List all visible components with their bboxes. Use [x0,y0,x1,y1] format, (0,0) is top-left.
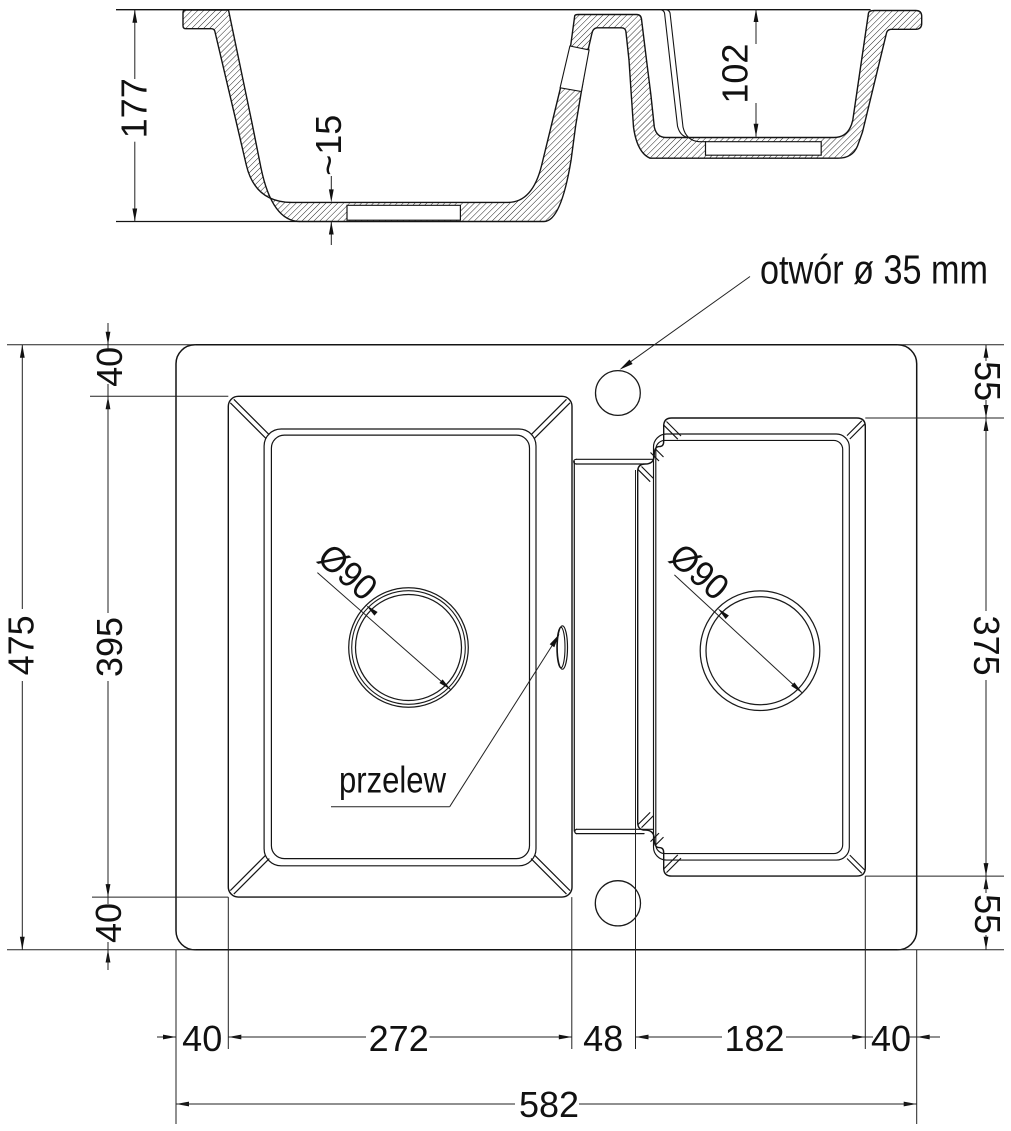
svg-text:272: 272 [369,1018,429,1059]
svg-text:395: 395 [89,617,130,677]
svg-text:582: 582 [519,1084,579,1125]
svg-text:375: 375 [966,616,1007,676]
svg-text:182: 182 [724,1018,784,1059]
svg-text:55: 55 [967,361,1008,401]
svg-text:40: 40 [89,347,130,387]
svg-text:przelew: przelew [339,760,446,801]
svg-text:40: 40 [871,1018,911,1059]
svg-text:Ø90: Ø90 [310,535,385,608]
svg-text:otwór ø 35 mm: otwór ø 35 mm [760,246,988,292]
svg-text:Ø90: Ø90 [662,535,737,608]
svg-text:48: 48 [583,1018,623,1059]
svg-text:~15: ~15 [308,115,349,176]
svg-text:102: 102 [715,44,756,104]
svg-text:40: 40 [88,903,129,943]
svg-text:475: 475 [1,615,42,675]
svg-text:177: 177 [114,78,155,138]
svg-text:40: 40 [182,1018,222,1059]
svg-text:55: 55 [967,894,1008,934]
